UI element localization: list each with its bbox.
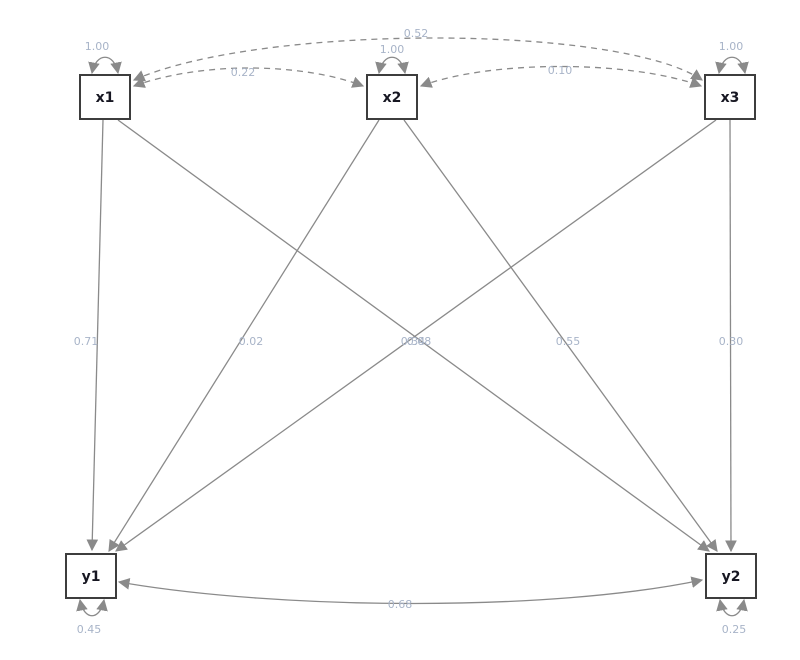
variance-label-y2: 0.25 (722, 623, 747, 636)
path-diagram-stage: 0.71 0.02 0.34 0.08 0.55 0.30 0.22 0.10 … (0, 0, 800, 660)
node-y2-label: y2 (722, 569, 741, 585)
node-x2-label: x2 (383, 90, 402, 106)
node-y1-label: y1 (82, 569, 101, 585)
covariance-x1-x3 (134, 38, 702, 80)
variance-loop-x1 (92, 57, 118, 73)
node-y2: y2 (706, 554, 756, 598)
edge-label-x2-y2: 0.55 (556, 335, 581, 348)
covariance-label-x2-x3: 0.10 (548, 64, 573, 77)
variance-label-x2: 1.00 (380, 43, 405, 56)
variance-loop-x2 (379, 57, 405, 73)
node-x2: x2 (367, 75, 417, 119)
edge-label-x2-y1: 0.02 (239, 335, 264, 348)
covariance-label-x1-x2: 0.22 (231, 66, 256, 79)
variance-label-x3: 1.00 (719, 40, 744, 53)
variance-label-y1: 0.45 (77, 623, 102, 636)
node-x1-label: x1 (96, 90, 115, 106)
node-x3: x3 (705, 75, 755, 119)
variance-loop-y2 (720, 600, 744, 616)
path-diagram: 0.71 0.02 0.34 0.08 0.55 0.30 0.22 0.10 … (0, 0, 800, 660)
variance-loop-y1 (80, 600, 104, 616)
covariance-label-y1-y2: 0.68 (388, 598, 413, 611)
edge-label-x1-y2: 0.08 (407, 335, 432, 348)
covariance-label-x1-x3: 0.52 (404, 27, 429, 40)
variance-label-x1: 1.00 (85, 40, 110, 53)
edge-label-x3-y2: 0.30 (719, 335, 744, 348)
node-x1: x1 (80, 75, 130, 119)
node-x3-label: x3 (721, 90, 740, 106)
edge-label-x1-y1: 0.71 (74, 335, 99, 348)
variance-loop-x3 (719, 57, 745, 73)
node-y1: y1 (66, 554, 116, 598)
